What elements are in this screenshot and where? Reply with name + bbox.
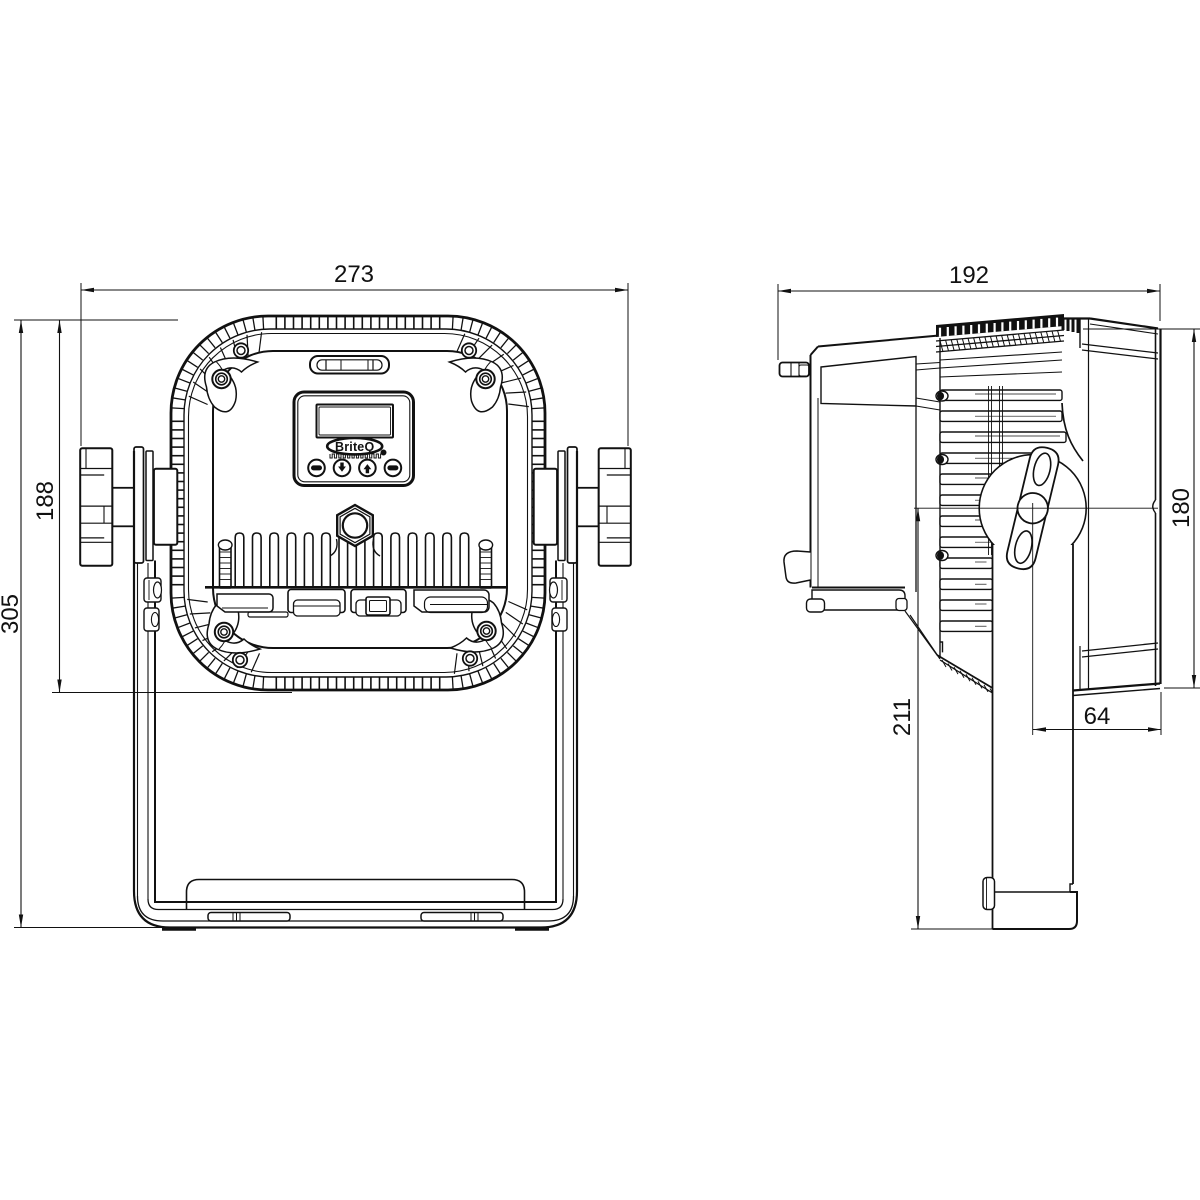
svg-text:305: 305 (0, 594, 24, 634)
svg-text:211: 211 (889, 698, 916, 736)
svg-text:64: 64 (1084, 703, 1111, 730)
svg-text:BriteQ: BriteQ (335, 440, 374, 454)
svg-text:273: 273 (334, 261, 374, 288)
svg-text:188: 188 (32, 481, 59, 521)
svg-text:180: 180 (1168, 488, 1195, 528)
svg-text:192: 192 (949, 262, 989, 289)
